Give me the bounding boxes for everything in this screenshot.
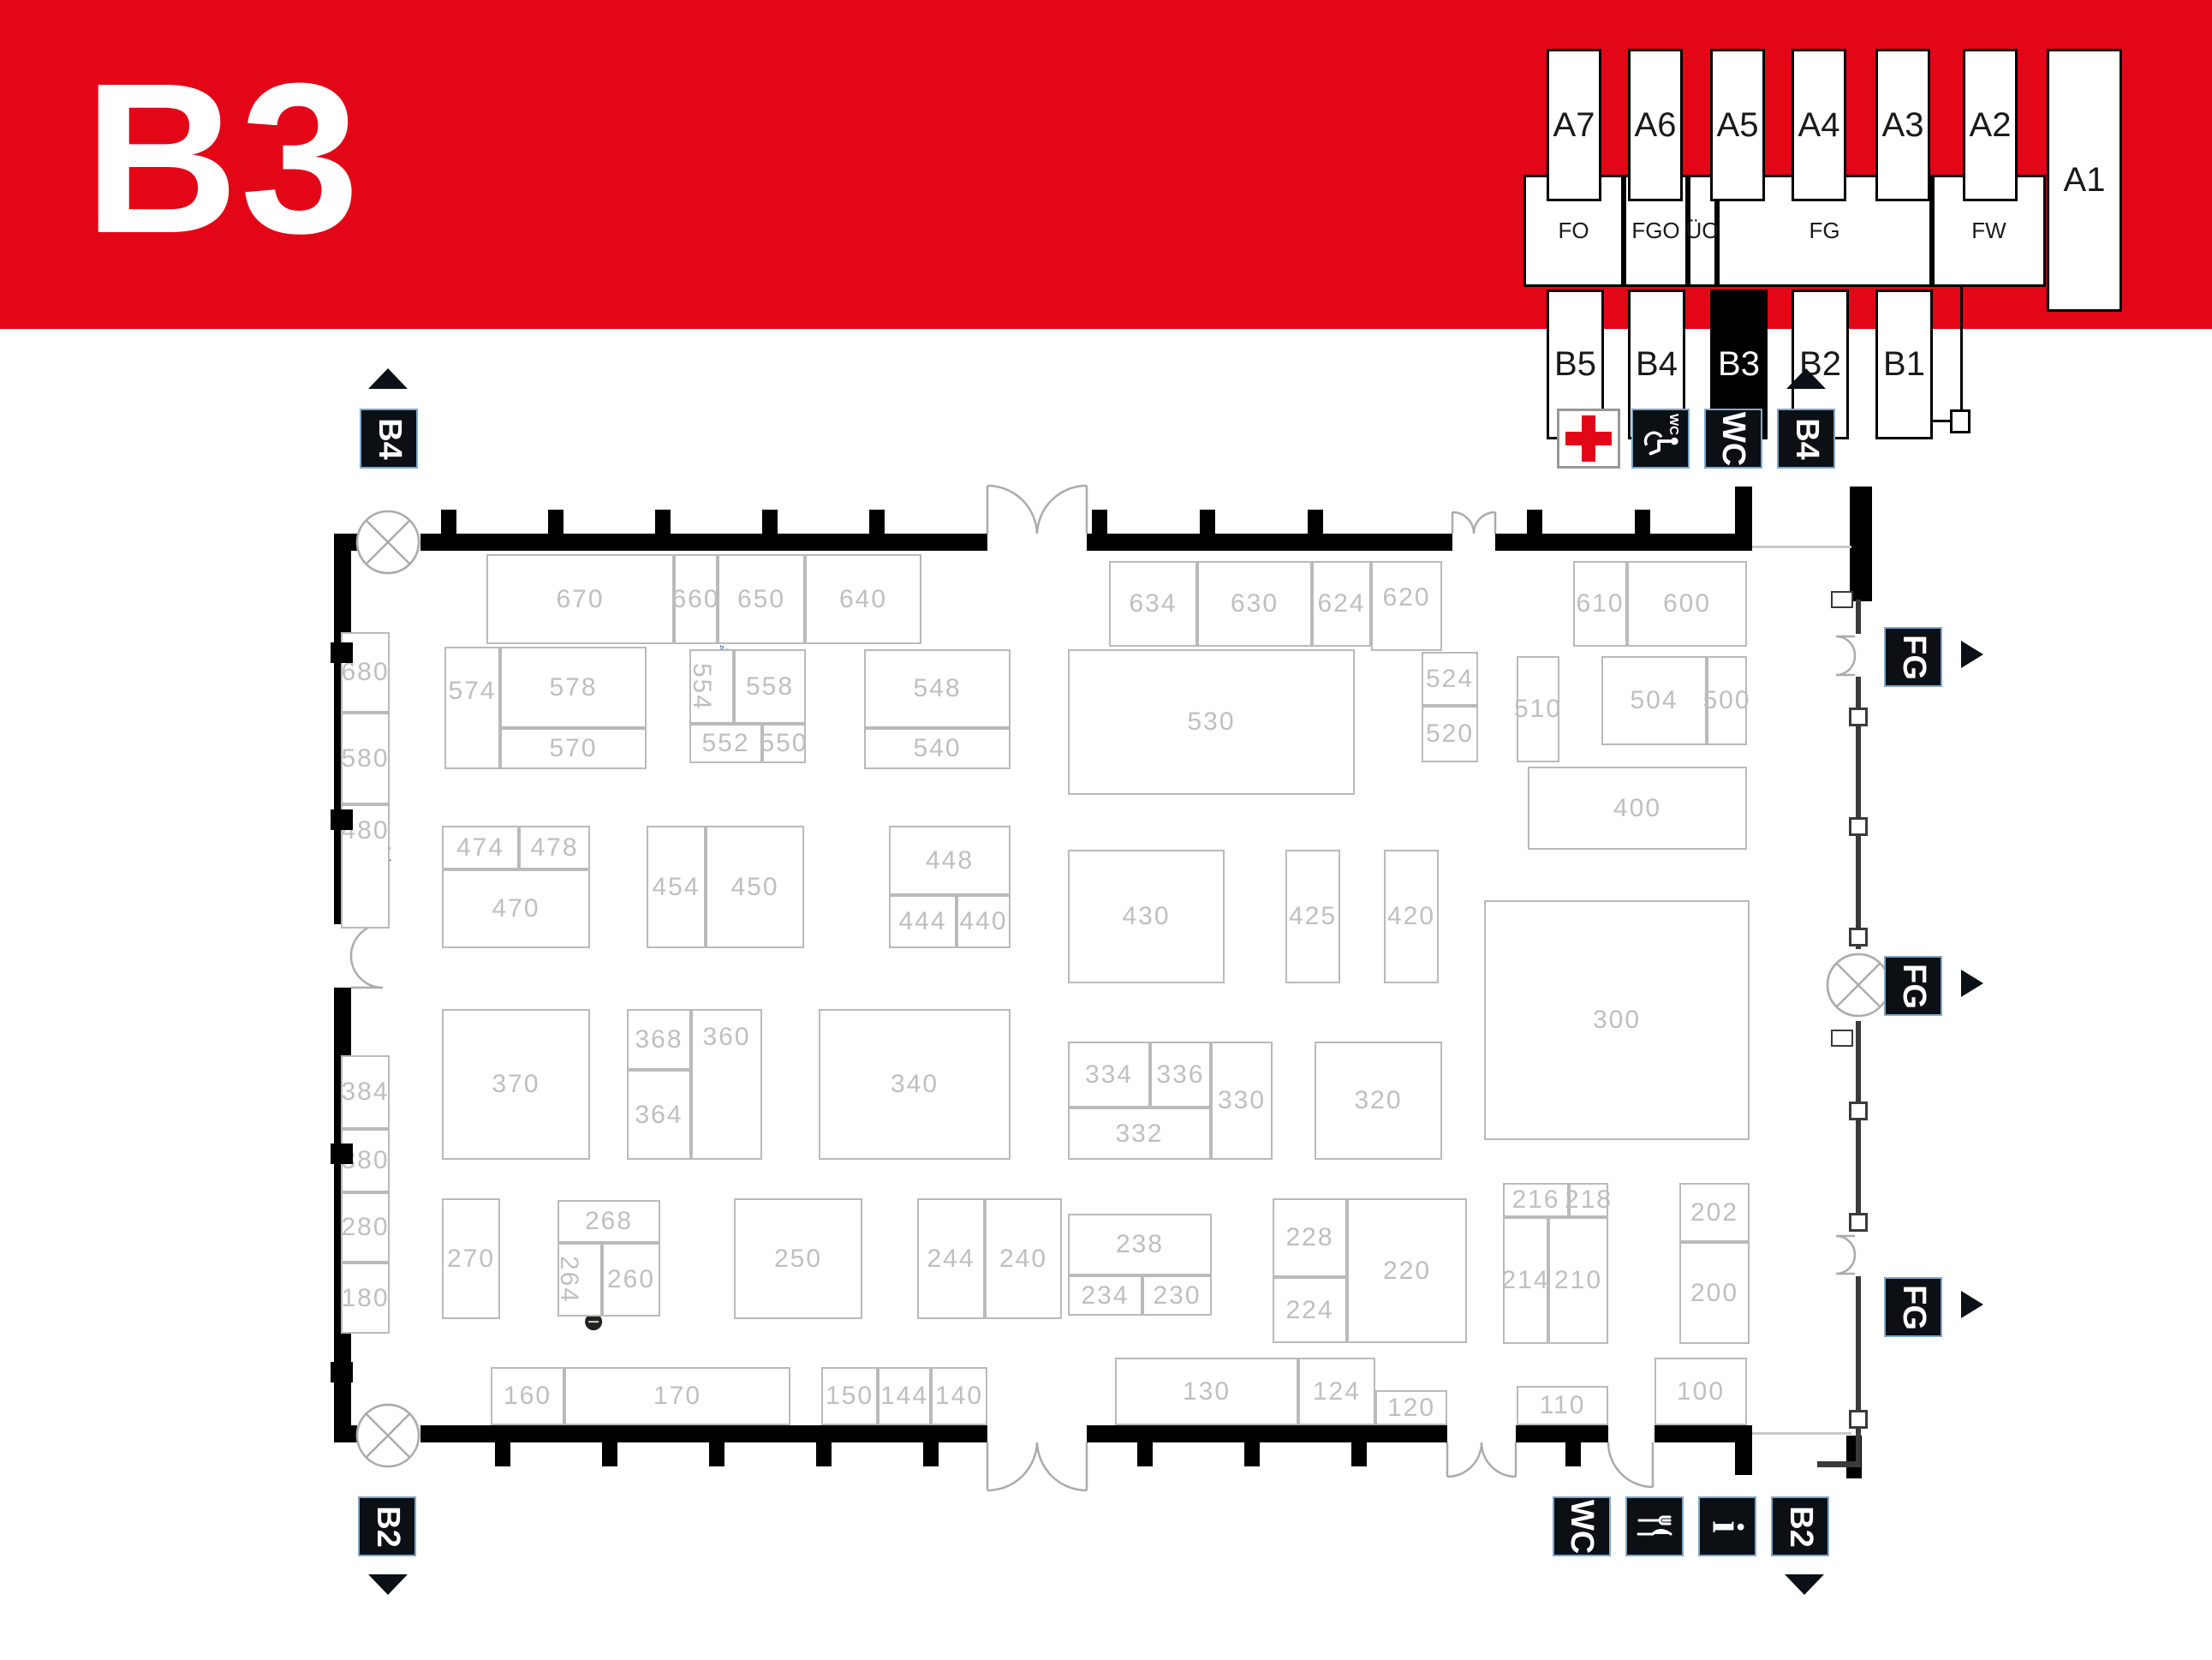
booth-number: 120 bbox=[1387, 1394, 1435, 1423]
booth-number: 370 bbox=[492, 1070, 540, 1099]
booth-336[interactable]: 336 bbox=[1150, 1042, 1211, 1108]
booth-610[interactable]: 610 bbox=[1573, 561, 1627, 647]
booth-number: 336 bbox=[1156, 1060, 1204, 1090]
pillar bbox=[1092, 510, 1107, 535]
pillar bbox=[441, 510, 456, 535]
booth-670[interactable]: 670 bbox=[486, 554, 674, 644]
booth-478[interactable]: 478 bbox=[519, 826, 590, 869]
booth-580[interactable]: 580 bbox=[341, 713, 390, 804]
booth-number: 368 bbox=[635, 1025, 683, 1054]
booth-number: 244 bbox=[927, 1245, 975, 1274]
booth-260[interactable]: 260 bbox=[602, 1243, 660, 1317]
booth-number: 450 bbox=[730, 873, 778, 902]
booth-558[interactable]: 558 bbox=[734, 649, 806, 724]
booth-number: 540 bbox=[913, 734, 961, 763]
corridor-pillar bbox=[1849, 817, 1868, 836]
booth-number: 124 bbox=[1313, 1377, 1361, 1406]
booth-200[interactable]: 200 bbox=[1679, 1242, 1750, 1344]
exit-bottom-right-b2[interactable]: B2 bbox=[1771, 1496, 1829, 1556]
hall-label: B4 bbox=[1636, 345, 1678, 384]
minimap-hall-a6[interactable]: A6 bbox=[1628, 49, 1683, 201]
booth-524[interactable]: 524 bbox=[1422, 652, 1478, 706]
booth-150[interactable]: 150 bbox=[821, 1367, 878, 1425]
booth-number: 216 bbox=[1511, 1185, 1559, 1215]
booth-384[interactable]: 384 bbox=[341, 1055, 390, 1129]
arrow-right-icon bbox=[1961, 641, 1983, 668]
hall-label: ÜO bbox=[1686, 218, 1720, 244]
booth-number: 425 bbox=[1289, 902, 1337, 931]
pillar bbox=[1527, 510, 1542, 535]
booth-number: 400 bbox=[1613, 794, 1661, 823]
booth-230[interactable]: 230 bbox=[1142, 1275, 1212, 1316]
wall-right-corridor bbox=[1856, 600, 1861, 1467]
booth-240[interactable]: 240 bbox=[985, 1198, 1062, 1319]
hall-label: B3 bbox=[1718, 345, 1760, 384]
pillar bbox=[495, 1441, 510, 1466]
booth-540[interactable]: 540 bbox=[864, 728, 1011, 769]
arrow-up-icon bbox=[368, 368, 408, 389]
first-aid-station[interactable] bbox=[1557, 409, 1620, 469]
booth-340[interactable]: 340 bbox=[819, 1009, 1011, 1160]
booth-300[interactable]: 300 bbox=[1484, 900, 1750, 1140]
wall-right-corridor-foot bbox=[1817, 1461, 1860, 1467]
booth-number: 260 bbox=[607, 1265, 655, 1294]
arrow-right-icon bbox=[1961, 970, 1983, 997]
booth-number: 100 bbox=[1677, 1377, 1725, 1406]
booth-number: 234 bbox=[1081, 1281, 1129, 1311]
booth-number: 552 bbox=[701, 729, 749, 758]
booth-444[interactable]: 444 bbox=[889, 895, 957, 948]
hall-label: A1 bbox=[2064, 161, 2106, 200]
booth-264[interactable]: 264 bbox=[557, 1243, 602, 1317]
booth-number: 160 bbox=[504, 1382, 552, 1411]
booth-number: 554 bbox=[687, 662, 716, 710]
corridor-pillar bbox=[1849, 1102, 1868, 1120]
booth-160[interactable]: 160 bbox=[491, 1367, 564, 1425]
booth-number: 270 bbox=[447, 1245, 495, 1274]
booth-number: 504 bbox=[1630, 686, 1678, 715]
booth-552[interactable]: 552 bbox=[689, 724, 762, 763]
booth-500[interactable]: 500 bbox=[1707, 656, 1747, 745]
booth-368[interactable]: 368 bbox=[627, 1009, 691, 1070]
booth-number: 170 bbox=[653, 1382, 701, 1411]
booth-332[interactable]: 332 bbox=[1068, 1108, 1211, 1160]
booth-number: 130 bbox=[1183, 1377, 1231, 1406]
pillar bbox=[1635, 510, 1650, 535]
info-point[interactable]: i bbox=[1698, 1496, 1756, 1556]
booth-number: 214 bbox=[1501, 1266, 1549, 1295]
pillar bbox=[1200, 510, 1215, 535]
hall-label: A7 bbox=[1553, 106, 1595, 145]
booth-number: 550 bbox=[760, 729, 808, 758]
booth-number: 228 bbox=[1285, 1223, 1333, 1252]
booth-140[interactable]: 140 bbox=[931, 1367, 987, 1425]
corridor-junction bbox=[1831, 591, 1853, 608]
booth-number: 578 bbox=[549, 673, 597, 702]
booth-number: 320 bbox=[1354, 1086, 1402, 1115]
hall-label: FW bbox=[1971, 218, 2006, 244]
booth-number: 520 bbox=[1426, 720, 1474, 749]
hall-label: B5 bbox=[1554, 345, 1596, 384]
booth-370[interactable]: 370 bbox=[442, 1009, 590, 1160]
booth-218[interactable]: 218 bbox=[1569, 1183, 1608, 1217]
booth-number: 180 bbox=[341, 1284, 389, 1313]
booth-number: 650 bbox=[737, 585, 785, 614]
booth-number: 224 bbox=[1285, 1296, 1333, 1325]
booth-250[interactable]: 250 bbox=[734, 1198, 862, 1319]
pillar bbox=[602, 1441, 617, 1466]
booth-number: 548 bbox=[913, 674, 961, 703]
restaurant[interactable] bbox=[1625, 1496, 1684, 1556]
threshold-top-right bbox=[1752, 546, 1851, 548]
minimap-hall-a4[interactable]: A4 bbox=[1792, 49, 1846, 201]
hall-label: A6 bbox=[1635, 106, 1677, 145]
arrow-up-icon bbox=[1786, 368, 1826, 389]
booth-530[interactable]: 530 bbox=[1068, 649, 1355, 795]
exit-fg-3[interactable]: FG bbox=[1884, 1277, 1942, 1337]
booth-550[interactable]: 550 bbox=[762, 724, 806, 763]
booth-number: 240 bbox=[999, 1245, 1047, 1274]
booth-554[interactable]: 554 bbox=[689, 649, 734, 724]
booth-100[interactable]: 100 bbox=[1655, 1358, 1747, 1425]
booth-number: 264 bbox=[554, 1256, 583, 1304]
booth-number: 470 bbox=[492, 894, 540, 923]
booth-number: 624 bbox=[1317, 589, 1365, 618]
booth-600[interactable]: 600 bbox=[1627, 561, 1747, 647]
minimap-hall-a1[interactable]: A1 bbox=[2047, 49, 2122, 312]
booth-number: 360 bbox=[702, 1023, 750, 1052]
booth-330[interactable]: 330 bbox=[1211, 1042, 1273, 1160]
booth-number: 558 bbox=[746, 672, 794, 702]
booth-number: 340 bbox=[891, 1070, 939, 1099]
accessible-wc[interactable]: WC bbox=[1631, 409, 1690, 469]
booth-number: 530 bbox=[1187, 708, 1235, 737]
wc-bottom[interactable]: WC bbox=[1553, 1496, 1611, 1556]
booth-number: 510 bbox=[1514, 695, 1562, 724]
booth-number: 420 bbox=[1387, 902, 1435, 931]
hall-label: FGO bbox=[1631, 218, 1679, 244]
booth-574[interactable]: 574 bbox=[444, 647, 500, 769]
booth-234[interactable]: 234 bbox=[1068, 1275, 1142, 1316]
corridor-pillar bbox=[1849, 1410, 1868, 1429]
booth-number: 440 bbox=[959, 907, 1007, 936]
booth-578[interactable]: 578 bbox=[500, 647, 647, 728]
booth-number: 250 bbox=[774, 1245, 822, 1274]
booth-number: 640 bbox=[839, 585, 887, 614]
wheelchair-icon bbox=[1641, 423, 1680, 463]
pillar bbox=[816, 1441, 832, 1466]
hall-label: A5 bbox=[1717, 106, 1759, 145]
pillar bbox=[762, 510, 778, 535]
threshold-bottom-right bbox=[1752, 1432, 1851, 1435]
hall-label: A2 bbox=[1970, 106, 2012, 145]
pillar bbox=[1308, 510, 1323, 535]
minimap-hall-a2[interactable]: A2 bbox=[1963, 49, 2018, 201]
hall-label: A3 bbox=[1882, 106, 1924, 145]
booth-number: 448 bbox=[926, 846, 974, 875]
booth-270[interactable]: 270 bbox=[442, 1198, 500, 1319]
booth-number: 330 bbox=[1218, 1086, 1266, 1115]
hall-label: FG bbox=[1809, 218, 1839, 244]
wall-pillar bbox=[331, 642, 353, 663]
pillar bbox=[548, 510, 563, 535]
booth-216[interactable]: 216 bbox=[1503, 1183, 1569, 1217]
booth-202[interactable]: 202 bbox=[1679, 1183, 1750, 1242]
booth-454[interactable]: 454 bbox=[647, 826, 706, 948]
booth-624[interactable]: 624 bbox=[1312, 561, 1371, 647]
pillar bbox=[869, 510, 885, 535]
corridor-pillar bbox=[1849, 708, 1868, 726]
info-icon: i bbox=[1702, 1520, 1752, 1532]
booth-number: 238 bbox=[1116, 1230, 1164, 1259]
arrow-right-icon bbox=[1961, 1291, 1983, 1318]
hall-label: B1 bbox=[1883, 345, 1925, 384]
booth-640[interactable]: 640 bbox=[805, 554, 921, 644]
booth-440[interactable]: 440 bbox=[957, 895, 1011, 948]
booth-number: 630 bbox=[1231, 589, 1279, 618]
corridor-pillar bbox=[1849, 928, 1868, 946]
booth-number: 144 bbox=[880, 1382, 928, 1411]
booth-number: 300 bbox=[1593, 1006, 1641, 1035]
booth-number: 570 bbox=[549, 734, 597, 763]
booth-520[interactable]: 520 bbox=[1422, 706, 1478, 762]
booth-360[interactable]: 360 bbox=[691, 1009, 762, 1160]
wall-right-top bbox=[1850, 487, 1872, 601]
exit-bottom-left-b2[interactable]: B2 bbox=[358, 1496, 416, 1556]
booth-number: 620 bbox=[1382, 583, 1430, 612]
pillar bbox=[1137, 1441, 1153, 1466]
minimap-hall-b1[interactable]: B1 bbox=[1875, 290, 1933, 439]
booth-420[interactable]: 420 bbox=[1384, 850, 1439, 983]
page-title: B3 bbox=[84, 51, 361, 266]
booth-170[interactable]: 170 bbox=[564, 1367, 790, 1425]
exit-fg-1[interactable]: FG bbox=[1884, 627, 1942, 687]
booth-number: 110 bbox=[1540, 1391, 1586, 1420]
wall-corner-top-right bbox=[1735, 487, 1752, 551]
booth-130[interactable]: 130 bbox=[1115, 1358, 1298, 1425]
exit-fg-2[interactable]: FG bbox=[1884, 956, 1942, 1016]
wall-pillar bbox=[331, 1143, 353, 1164]
arrow-down-icon bbox=[368, 1574, 408, 1595]
booth-number: 202 bbox=[1690, 1198, 1738, 1227]
booth-number: 524 bbox=[1426, 665, 1474, 694]
booth-180[interactable]: 180 bbox=[341, 1263, 390, 1334]
booth-120[interactable]: 120 bbox=[1375, 1390, 1447, 1425]
pillar bbox=[1565, 1441, 1581, 1466]
booth-110[interactable]: 110 bbox=[1517, 1386, 1608, 1425]
pillar bbox=[1351, 1441, 1367, 1466]
booth-number: 364 bbox=[635, 1101, 683, 1130]
booth-280[interactable]: 280 bbox=[341, 1192, 390, 1263]
booth-number: 454 bbox=[652, 873, 700, 902]
booth-425[interactable]: 425 bbox=[1285, 850, 1340, 983]
booth-number: 610 bbox=[1576, 589, 1624, 618]
minimap-connector bbox=[1930, 420, 1950, 422]
booth-number: 150 bbox=[826, 1382, 873, 1411]
booth-124[interactable]: 124 bbox=[1298, 1358, 1375, 1425]
booth-number: 574 bbox=[448, 677, 496, 706]
booth-number: 430 bbox=[1122, 902, 1170, 931]
booth-634[interactable]: 634 bbox=[1109, 561, 1197, 647]
pillar bbox=[923, 1441, 939, 1466]
wall-pillar bbox=[331, 1362, 353, 1382]
booth-number: 280 bbox=[341, 1213, 389, 1242]
wc-top[interactable]: WC bbox=[1704, 409, 1762, 469]
booth-number: 444 bbox=[898, 907, 946, 936]
minimap-hall-a5[interactable]: A5 bbox=[1710, 49, 1765, 201]
booth-number: 600 bbox=[1663, 589, 1711, 618]
booth-number: 474 bbox=[456, 833, 504, 863]
hall-label: A4 bbox=[1798, 106, 1840, 145]
booth-548[interactable]: 548 bbox=[864, 649, 1011, 728]
booth-448[interactable]: 448 bbox=[889, 826, 1011, 895]
booth-400[interactable]: 400 bbox=[1528, 767, 1747, 850]
booth-number: 334 bbox=[1085, 1060, 1133, 1090]
hall-label: FO bbox=[1558, 218, 1589, 244]
booth-650[interactable]: 650 bbox=[718, 554, 805, 644]
corridor-pillar bbox=[1849, 1213, 1868, 1232]
booth-number: 200 bbox=[1690, 1279, 1738, 1308]
booth-214[interactable]: 214 bbox=[1503, 1217, 1548, 1344]
booth-660[interactable]: 660 bbox=[674, 554, 718, 644]
booth-number: 660 bbox=[671, 585, 719, 614]
arrow-down-icon bbox=[1785, 1574, 1824, 1595]
booth-570[interactable]: 570 bbox=[500, 728, 647, 769]
booth-238[interactable]: 238 bbox=[1068, 1214, 1212, 1275]
booth-number: 500 bbox=[1702, 686, 1750, 715]
booth-630[interactable]: 630 bbox=[1197, 561, 1312, 647]
booth-number: 478 bbox=[530, 833, 578, 863]
booth-244[interactable]: 244 bbox=[917, 1198, 985, 1319]
minimap-entrance-square bbox=[1950, 409, 1971, 433]
booth-number: 580 bbox=[341, 744, 389, 773]
exit-top-left-b4[interactable]: B4 bbox=[360, 409, 418, 469]
booth-474[interactable]: 474 bbox=[442, 826, 519, 869]
minimap-connector bbox=[1960, 287, 1963, 409]
booth-450[interactable]: 450 bbox=[706, 826, 804, 948]
booth-number: 230 bbox=[1153, 1281, 1201, 1311]
booth-470[interactable]: 470 bbox=[442, 869, 590, 948]
booth-number: 220 bbox=[1383, 1257, 1431, 1286]
header-band: B3 FOFGOÜOFGFWA7A6A5A4A3A2A1B5B4B3B2B1 bbox=[0, 0, 2212, 329]
booth-268[interactable]: 268 bbox=[557, 1200, 660, 1243]
booth-334[interactable]: 334 bbox=[1068, 1042, 1150, 1108]
minimap-hall-a3[interactable]: A3 bbox=[1875, 49, 1930, 201]
booth-620[interactable]: 620 bbox=[1371, 561, 1442, 651]
booth-320[interactable]: 320 bbox=[1315, 1042, 1442, 1160]
booth-210[interactable]: 210 bbox=[1548, 1217, 1608, 1344]
pillar bbox=[655, 510, 671, 535]
wall-stub-bottom-right-1 bbox=[1735, 1425, 1752, 1475]
booth-number: 634 bbox=[1129, 589, 1177, 618]
booth-224[interactable]: 224 bbox=[1273, 1277, 1347, 1343]
booth-504[interactable]: 504 bbox=[1601, 656, 1707, 745]
pillar bbox=[1244, 1441, 1260, 1466]
booth-number: 670 bbox=[556, 585, 604, 614]
booth-number: 384 bbox=[341, 1078, 389, 1107]
booth-220[interactable]: 220 bbox=[1347, 1198, 1467, 1343]
corridor-junction bbox=[1831, 1030, 1853, 1047]
exit-top-right-b4[interactable]: B4 bbox=[1777, 409, 1835, 469]
booth-144[interactable]: 144 bbox=[878, 1367, 931, 1425]
wall-pillar bbox=[331, 809, 353, 830]
fork-knife-icon bbox=[1634, 1506, 1675, 1547]
booth-number: 140 bbox=[935, 1382, 983, 1411]
booth-510[interactable]: 510 bbox=[1517, 656, 1559, 762]
booth-number: 268 bbox=[585, 1207, 633, 1236]
minimap-hall-a7[interactable]: A7 bbox=[1547, 49, 1601, 201]
booth-430[interactable]: 430 bbox=[1068, 850, 1225, 983]
booth-364[interactable]: 364 bbox=[627, 1070, 691, 1160]
booth-228[interactable]: 228 bbox=[1273, 1198, 1347, 1277]
booth-number: 210 bbox=[1554, 1266, 1602, 1295]
pillar bbox=[709, 1441, 724, 1466]
booth-number: 332 bbox=[1115, 1120, 1163, 1149]
first-aid-cross-icon bbox=[1559, 411, 1618, 466]
booth-number: 218 bbox=[1565, 1185, 1613, 1215]
